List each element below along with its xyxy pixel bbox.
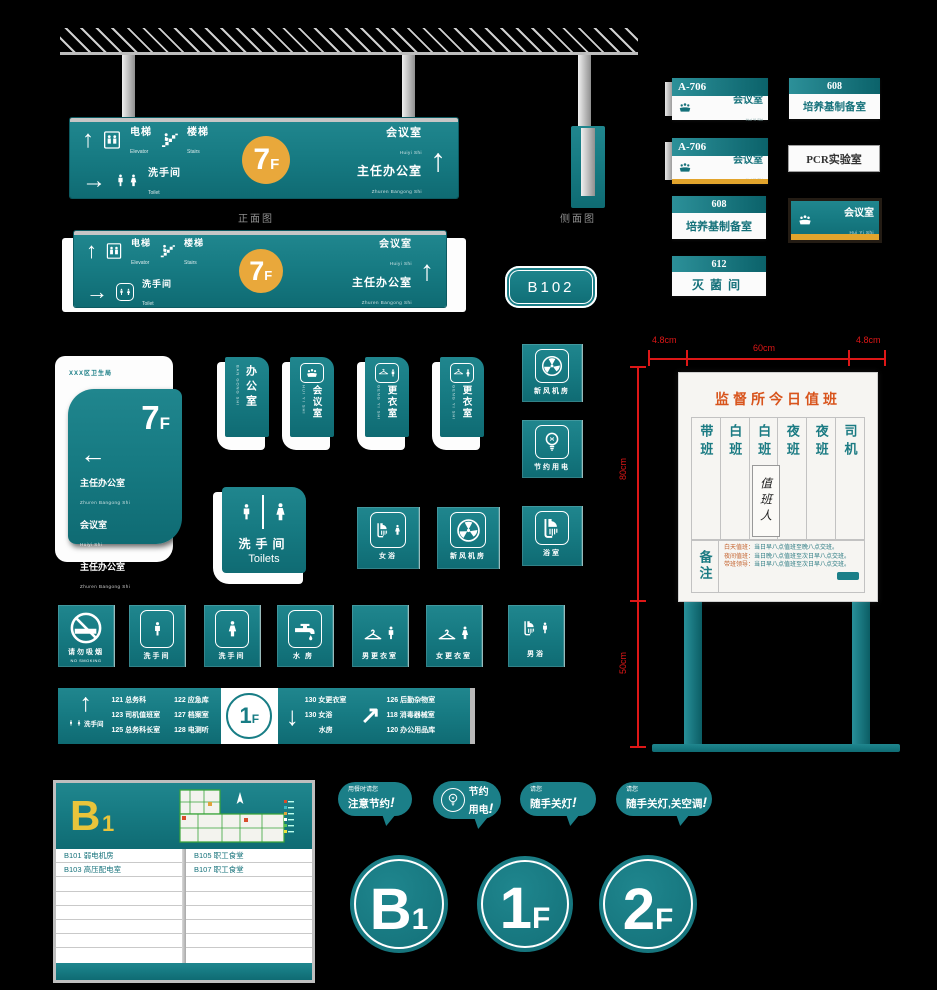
front-view-label: 正面图 xyxy=(238,210,274,225)
floor-badge: 7F xyxy=(68,389,182,437)
note-text: 当日早八点值班至次日早八点交班。 xyxy=(754,562,850,568)
director-office-pinyin: Zhuren Bangong Shi xyxy=(362,300,412,305)
bubble-lights-ac-off: 请您 随手关灯,关空调! xyxy=(616,782,712,816)
female-icon xyxy=(224,615,241,643)
room-plate-pcr: PCR实验室 xyxy=(788,145,880,172)
duty-board-title: 监督所今日值班 xyxy=(679,389,877,409)
directory-entry: 水房 xyxy=(305,723,347,738)
toilets-sign: 洗手间 Toilets xyxy=(222,487,306,573)
no-smoking-icon xyxy=(68,610,104,646)
plate-mount-tab xyxy=(665,142,672,180)
plate-room-name: 会议室 xyxy=(844,208,874,219)
up-arrow-icon: ↑ xyxy=(86,240,97,262)
bubble-big-text: 注意节约 xyxy=(348,798,390,810)
bubble-small-text: 请您 xyxy=(530,787,586,794)
floor-badge: 7F xyxy=(242,136,290,184)
up-arrow-icon: ↑ xyxy=(420,257,434,285)
note-term: 带班领导： xyxy=(724,562,754,568)
side-view-rod xyxy=(581,128,595,196)
sign-female-bath: 女浴 xyxy=(357,507,419,569)
directory-entry: 127 档案室 xyxy=(174,708,209,723)
note-text: 当日晚八点值班至次日早八点交班。 xyxy=(754,554,850,560)
left-arrow-icon: ← xyxy=(68,437,182,473)
duty-person-card: 值班人 xyxy=(752,465,780,537)
note-term: 白天值班： xyxy=(724,545,754,551)
female-icon xyxy=(76,718,82,728)
duty-roster-board: 监督所今日值班 带班 白班 白班 夜班 夜班 司机 值班人 备注 白天值班：当日… xyxy=(678,372,878,602)
dimension-line-top xyxy=(648,358,886,360)
director-office-label: 主任办公室 xyxy=(352,277,412,289)
meeting-icon xyxy=(796,213,814,228)
note-chip xyxy=(837,572,859,580)
sign-toilet-male: 洗手间 xyxy=(129,605,185,667)
destination-label: 会议室 xyxy=(80,520,107,530)
floor-number: 7 xyxy=(141,399,159,436)
floor-suffix: F xyxy=(160,414,170,433)
plate-room-pinyin: Hui Yi Shi xyxy=(746,117,763,122)
room-plate-608-right: 608 培养基制备室 xyxy=(789,78,880,119)
utility-sign-bathroom: 浴室 xyxy=(522,506,582,566)
male-icon xyxy=(118,286,125,298)
directory-entry: 123 司机值班室 xyxy=(112,708,161,723)
wc-icons xyxy=(116,283,134,301)
bubble-tail xyxy=(566,814,580,826)
sign-locker-male: 男更衣室 xyxy=(352,605,408,667)
stairs-icon xyxy=(160,130,179,149)
bubble-lights-off: 请您 随手关灯! xyxy=(520,782,596,816)
exclamation: ! xyxy=(702,794,707,810)
floor-number: B xyxy=(70,795,100,837)
male-icon xyxy=(114,173,127,188)
door-sign-locker-female: GENG YI SHI 更衣室 xyxy=(440,357,484,437)
plate-room-number: 612 xyxy=(672,256,766,272)
floor-circle-1f: 1 F xyxy=(477,856,573,952)
fan-icon xyxy=(540,354,564,378)
hanger-icon xyxy=(437,628,457,648)
destination-pinyin: Zhuren Bangong Shi xyxy=(80,584,130,589)
dimension-line-side xyxy=(637,366,639,748)
utility-sign-fan-room: 新风机房 xyxy=(522,344,582,402)
b1-directory-sign: B 1 B101 弱电机房 B10 xyxy=(53,780,315,983)
plate-room-name: 灭菌间 xyxy=(692,276,746,293)
bubble-save-power: 节约 用电! xyxy=(433,781,501,819)
director-office-pinyin: Zhuren Bangong Shi xyxy=(372,189,422,194)
destination-label: 主任办公室 xyxy=(80,478,125,488)
bulb-icon xyxy=(540,430,564,454)
plate-mount-tab xyxy=(665,82,672,116)
toilet-label-en: Toilet xyxy=(142,301,154,307)
hanging-rod xyxy=(578,55,591,131)
sign-label: 洗手间 xyxy=(144,651,171,661)
dimension-value: 60cm xyxy=(753,343,775,353)
floor-number: 1 xyxy=(239,703,251,729)
up-arrow-icon: ↑ xyxy=(82,128,94,152)
elevator-icon xyxy=(105,242,123,260)
door-sign-office: BAN GONG SHI 办公室 xyxy=(225,357,269,437)
sign-no-smoking: 请勿吸烟 NO SMOKING xyxy=(58,605,114,667)
bubble-line2: 用电 xyxy=(469,805,489,816)
stairs-label-en: Stairs xyxy=(187,149,200,155)
room-plate-608-left: 608 培养基制备室 xyxy=(672,196,766,239)
door-sign-label: 办公室 xyxy=(243,365,259,410)
duty-column-header: 带班 xyxy=(696,424,715,540)
up-arrow-icon: ↑ xyxy=(80,691,93,716)
elevator-icon xyxy=(102,130,122,150)
room-plate-a706-2: A-706 会议室 Hui Yi Shi xyxy=(672,138,768,184)
floor-suffix: F xyxy=(270,156,279,173)
directory-entry: 126 后勤杂物室 xyxy=(386,693,435,708)
female-icon xyxy=(125,286,132,298)
plate-room-name: PCR实验室 xyxy=(806,151,862,167)
sign-fan-room: 新风机房 xyxy=(437,507,499,569)
duty-column-header: 夜班 xyxy=(812,424,831,540)
meeting-room-label: 会议室 xyxy=(386,127,422,139)
dimension-tick xyxy=(630,600,646,602)
door-sign-pinyin: GENG YI SHI xyxy=(452,385,457,420)
sign-label: 女更衣室 xyxy=(436,651,472,661)
faucet-icon xyxy=(292,616,318,642)
dimension-value: 4.8cm xyxy=(856,335,881,345)
fan-icon xyxy=(455,517,482,544)
directory-entry: 128 电测听 xyxy=(174,723,209,738)
stairs-label-en: Stairs xyxy=(184,260,197,266)
dimension-tick xyxy=(884,350,886,366)
hanger-icon xyxy=(363,628,383,648)
dimension-value: 4.8cm xyxy=(652,335,677,345)
bubble-save-food: 用餐时请您 注意节约! xyxy=(338,782,412,816)
directory-entry: B107 职工食堂 xyxy=(186,863,312,877)
bubble-big-text: 随手关灯,关空调 xyxy=(626,798,702,810)
floor-circle-2f: 2 F xyxy=(599,855,697,953)
dimension-tick xyxy=(630,746,646,748)
directory-entry: 122 应急库 xyxy=(174,693,209,708)
dimension-tick xyxy=(848,350,850,366)
shower-icon xyxy=(374,517,392,543)
exclamation: ! xyxy=(390,794,395,810)
organization-name: XXX区卫生局 xyxy=(55,356,173,377)
note-text: 当日早八点值班至晚八点交班。 xyxy=(754,545,838,551)
hanger-icon xyxy=(453,368,464,379)
right-arrow-icon: → xyxy=(82,169,106,193)
duty-column-header: 夜班 xyxy=(783,424,802,540)
door-sign-pinyin: HUI YI SHI xyxy=(302,385,307,420)
shower-icon xyxy=(521,613,539,643)
directory-entry: 130 女浴 xyxy=(305,708,347,723)
hanging-rod xyxy=(402,55,415,119)
directory-entry: 121 总务科 xyxy=(112,693,161,708)
sign-label: 水房 xyxy=(293,651,317,661)
plate-room-name: 会议室 xyxy=(733,155,763,166)
room-plate-612: 612 灭菌间 xyxy=(672,256,766,296)
room-plate-meeting: 会议室 Hui Yi Shi xyxy=(788,198,882,243)
duty-person-label: 值班人 xyxy=(758,477,775,525)
sign-bath-male: 男浴 xyxy=(508,605,564,667)
plate-accent-strip xyxy=(791,234,879,240)
divider xyxy=(262,495,264,529)
toilet-label: 洗手间 xyxy=(142,279,172,289)
signage-design-sheet: ↑ 电梯 Elevator 楼梯 Stairs → 洗手间 Toilet xyxy=(0,0,937,990)
stairs-icon xyxy=(159,242,176,259)
dimension-tick xyxy=(630,366,646,368)
duty-column-header: 司机 xyxy=(841,424,860,540)
utility-sign-label: 新风机房 xyxy=(534,386,570,396)
sign-toilet-female: 洗手间 xyxy=(204,605,260,667)
floor-badge-panel: 1F xyxy=(221,688,278,744)
circle-ring xyxy=(481,860,569,948)
circle-ring xyxy=(603,859,693,949)
utility-sign-save-power: 节约用电 xyxy=(522,420,582,478)
floor-badge: 7F xyxy=(239,249,283,293)
plate-accent-strip xyxy=(672,179,768,184)
dimension-tick xyxy=(686,350,688,366)
door-sign-locker-male: GENG YI SHI 更衣室 xyxy=(365,357,409,437)
floor-circle-b1: B 1 xyxy=(350,855,448,953)
elevator-label-en: Elevator xyxy=(131,260,149,266)
door-sign-pinyin: BAN GONG SHI xyxy=(236,365,241,410)
door-sign-meeting: HUI YI SHI 会议室 xyxy=(290,357,334,437)
female-icon xyxy=(271,499,290,525)
hanger-icon xyxy=(378,368,389,379)
room-number: B102 xyxy=(527,279,574,296)
utility-sign-label: 浴室 xyxy=(543,548,561,558)
notes-label: 备注 xyxy=(696,550,715,582)
duty-notes: 备注 白天值班：当日早八点值班至晚八点交班。 夜间值班：当日晚八点值班至次日早八… xyxy=(691,539,865,593)
bubble-line1: 节约 xyxy=(469,787,489,798)
toilets-label-zh: 洗手间 xyxy=(238,535,289,552)
shower-icon xyxy=(540,516,564,540)
floor-plan-map xyxy=(178,788,296,846)
b1-footer-strip xyxy=(56,963,312,980)
destination-label: 主任办公室 xyxy=(80,562,125,572)
sign-locker-female: 女更衣室 xyxy=(426,605,482,667)
male-icon xyxy=(384,618,398,648)
toilet-label: 洗手间 xyxy=(148,168,181,179)
floor-number: 7 xyxy=(253,143,270,177)
male-icon xyxy=(539,615,551,641)
directory-entry: 120 办公用品库 xyxy=(386,723,435,738)
sign-base xyxy=(652,744,900,752)
plate-room-number: 608 xyxy=(789,78,880,94)
duty-column-header: 白班 xyxy=(725,424,744,540)
female-icon xyxy=(464,367,472,379)
overhead-directional-sign-2: ↑ 电梯 Elevator 楼梯 Stairs → 洗手间 Toilet xyxy=(74,231,446,307)
meeting-room-pinyin: Huiyi Shi xyxy=(390,261,412,266)
room-plate-a706-1: A-706 会议室 Hui Yi Shi xyxy=(672,78,768,120)
floor-suffix: F xyxy=(264,268,272,283)
sign-label: 新风机房 xyxy=(450,551,486,561)
plate-room-name: 培养基制备室 xyxy=(803,99,866,114)
sign-label: 请勿吸烟 xyxy=(68,647,104,657)
meeting-room-pinyin: Huiyi Shi xyxy=(400,150,422,155)
floor-directory-1f: ↑ 洗手间 121 总务科 123 司机值班室 125 总务科长室 122 应急… xyxy=(58,688,475,744)
male-icon xyxy=(238,499,255,525)
up-right-arrow-icon: ↗ xyxy=(360,704,380,728)
female-icon xyxy=(392,519,403,541)
north-arrow-icon xyxy=(237,792,244,804)
dimension-value: 80cm xyxy=(618,458,628,480)
directory-entry: B103 高压配电室 xyxy=(56,863,182,877)
floor-sub: 1 xyxy=(102,813,114,835)
female-icon xyxy=(127,173,140,188)
ceiling-hatch xyxy=(60,28,638,55)
stairs-label: 楼梯 xyxy=(187,127,209,138)
meeting-icon xyxy=(304,367,320,380)
directory-entry: B101 弱电机房 xyxy=(56,849,182,863)
near-destination: 洗手间 xyxy=(84,718,104,728)
door-sign-label: 更衣室 xyxy=(384,385,398,420)
dimension-tick xyxy=(648,350,650,366)
right-arrow-icon: → xyxy=(86,281,108,303)
door-sign-label: 更衣室 xyxy=(459,385,473,420)
meeting-room-label: 会议室 xyxy=(379,239,412,250)
hanging-rod xyxy=(122,55,135,119)
bulb-icon xyxy=(445,792,461,808)
bubble-tail xyxy=(676,814,690,826)
overhead-directional-sign-1: ↑ 电梯 Elevator 楼梯 Stairs → 洗手间 Toilet xyxy=(70,118,458,198)
circle-ring xyxy=(354,859,444,949)
floor-number: 7 xyxy=(249,256,264,287)
door-sign-label: 会议室 xyxy=(309,385,323,420)
directory-entry: 125 总务科长室 xyxy=(112,723,161,738)
male-icon xyxy=(389,367,397,379)
door-sign-pinyin: GENG YI SHI xyxy=(377,385,382,420)
elevator-label: 电梯 xyxy=(131,238,151,248)
wc-icons xyxy=(114,172,140,190)
director-office-label: 主任办公室 xyxy=(357,164,422,178)
note-term: 夜间值班： xyxy=(724,554,754,560)
destination-pinyin: Zhuren Bangong Shi xyxy=(80,500,130,505)
bubble-tail xyxy=(474,817,488,829)
bubble-big-text: 随手关灯 xyxy=(530,798,572,810)
plate-room-name: 会议室 xyxy=(733,95,763,106)
bubble-small-text: 用餐时请您 xyxy=(348,787,402,794)
bubble-tail xyxy=(382,814,396,826)
sign-label: 女浴 xyxy=(379,551,397,561)
directory-entry: 118 消毒器械室 xyxy=(386,708,435,723)
bubble-small-text: 请您 xyxy=(626,787,702,794)
meeting-icon xyxy=(677,101,693,115)
plate-room-number: 608 xyxy=(672,196,766,213)
sign-label: 男更衣室 xyxy=(362,651,398,661)
floor-suffix: F xyxy=(252,712,259,726)
sign-label-en: NO SMOKING xyxy=(70,658,101,663)
plate-room-name: 培养基制备室 xyxy=(686,218,752,234)
exclamation: ! xyxy=(489,800,494,816)
female-icon xyxy=(458,618,472,648)
male-icon xyxy=(68,718,74,728)
sign-water-room: 水房 xyxy=(277,605,333,667)
room-number-badge: B102 xyxy=(505,266,597,308)
meeting-icon xyxy=(677,161,693,175)
utility-sign-label: 节约用电 xyxy=(534,462,570,472)
toilet-label-en: Toilet xyxy=(148,190,160,196)
down-arrow-icon: ↓ xyxy=(286,703,299,729)
side-view-label: 侧面图 xyxy=(560,210,596,225)
destination-pinyin: Huiyi Shi xyxy=(80,542,102,547)
male-icon xyxy=(150,615,165,643)
up-arrow-icon: ↑ xyxy=(430,144,446,176)
elevator-label-en: Elevator xyxy=(130,149,148,155)
sign-label: 洗手间 xyxy=(219,651,246,661)
b1-directory-body: B101 弱电机房 B103 高压配电室 B105 职工食堂 B107 职工食堂 xyxy=(56,849,312,963)
toilets-label-en: Toilets xyxy=(248,553,279,565)
exclamation: ! xyxy=(572,794,577,810)
directory-entry: 130 女更衣室 xyxy=(305,693,347,708)
b1-header: B 1 xyxy=(56,783,312,849)
stairs-label: 楼梯 xyxy=(184,238,204,248)
elevator-label: 电梯 xyxy=(130,127,152,138)
sign-label: 男浴 xyxy=(527,649,545,659)
wall-floor-sign: 7F ← 主任办公室Zhuren Bangong Shi 会议室Huiyi Sh… xyxy=(68,389,182,544)
dimension-value: 50cm xyxy=(618,652,628,674)
directory-entry: B105 职工食堂 xyxy=(186,849,312,863)
